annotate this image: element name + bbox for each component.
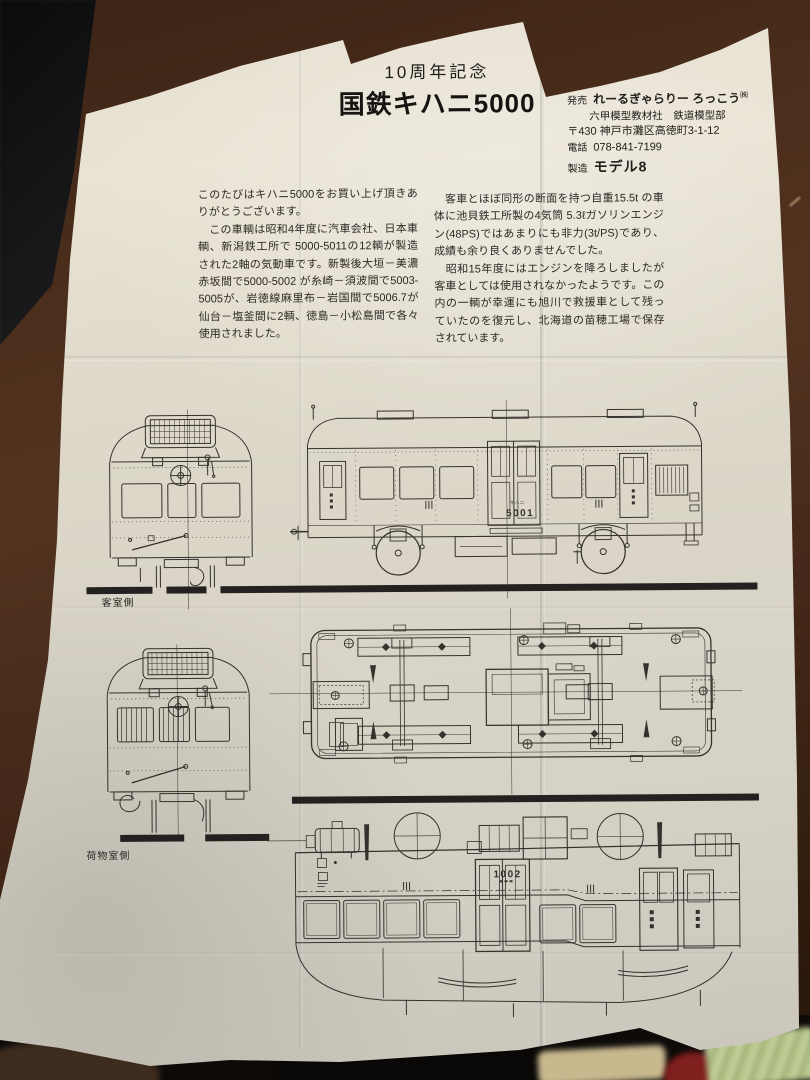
- roof-view-drawing: 1002: [287, 810, 743, 1018]
- table-scratch: [789, 196, 802, 207]
- maker-row: 製造モデル8: [567, 155, 777, 177]
- publisher-division: 六甲模型教材社 鉄道模型部: [567, 108, 777, 125]
- maker-label: 製造: [568, 163, 588, 174]
- underframe-plan-drawing: [294, 621, 725, 764]
- sale-label: 発売: [567, 95, 587, 106]
- body-text-right-column: 客車とほぼ同形の断面を持つ自重15.5t の車体に池貝鉄工所製の4気筒 5.3ℓ…: [434, 190, 665, 348]
- product-title: 国鉄キハニ5000: [312, 83, 562, 122]
- publisher-block: 発売れーるぎゃらりー ろっこう㈱ 六甲模型教材社 鉄道模型部 〒430 神戸市灘…: [567, 89, 778, 177]
- leaflet-content: 10周年記念 国鉄キハニ5000 発売れーるぎゃらりー ろっこう㈱ 六甲模型教材…: [0, 0, 810, 1080]
- photo-of-model-train-leaflet: 10周年記念 国鉄キハニ5000 発売れーるぎゃらりー ろっこう㈱ 六甲模型教材…: [0, 0, 810, 1080]
- company-mark: ㈱: [740, 91, 748, 100]
- roof-car-number-marking: 1002: [493, 869, 521, 880]
- publisher-telephone-row: 電話078-841-7199: [567, 139, 777, 156]
- publisher-name: れーるぎゃらりー ろっこう: [593, 91, 740, 106]
- car-number-marking: 5001: [506, 508, 534, 519]
- car-series-marking: キハニ: [510, 500, 525, 505]
- front-view-baggage-side-drawing: [93, 644, 264, 840]
- body-text-left-column: このたびはキハニ5000をお買い上げ頂きありがとうございます。 この車輌は昭和4…: [198, 186, 419, 344]
- baggage-side-caption: 荷物室側: [86, 847, 130, 862]
- rail-line-segment: [166, 586, 206, 593]
- passenger-side-caption: 客室側: [102, 594, 135, 609]
- table-edge-highlight: [537, 1045, 667, 1080]
- anniversary-heading: 10周年記念: [332, 57, 542, 83]
- rail-line-segment: [120, 835, 184, 842]
- tel-number: 078-841-7199: [593, 141, 662, 153]
- maker-name: モデル8: [593, 158, 647, 174]
- publisher-address: 〒430 神戸市灘区高徳町3-1-12: [567, 123, 777, 140]
- front-view-passenger-side-drawing: [95, 409, 266, 595]
- publisher-sale-row: 発売れーるぎゃらりー ろっこう㈱: [567, 89, 777, 109]
- leaflet-paper: 10周年記念 国鉄キハニ5000 発売れーるぎゃらりー ろっこう㈱ 六甲模型教材…: [0, 0, 810, 1080]
- rail-line-segment: [292, 794, 759, 804]
- tel-label: 電話: [567, 142, 587, 153]
- rail-line-segment: [205, 834, 269, 841]
- side-view-drawing: キハニ 5001: [289, 401, 720, 589]
